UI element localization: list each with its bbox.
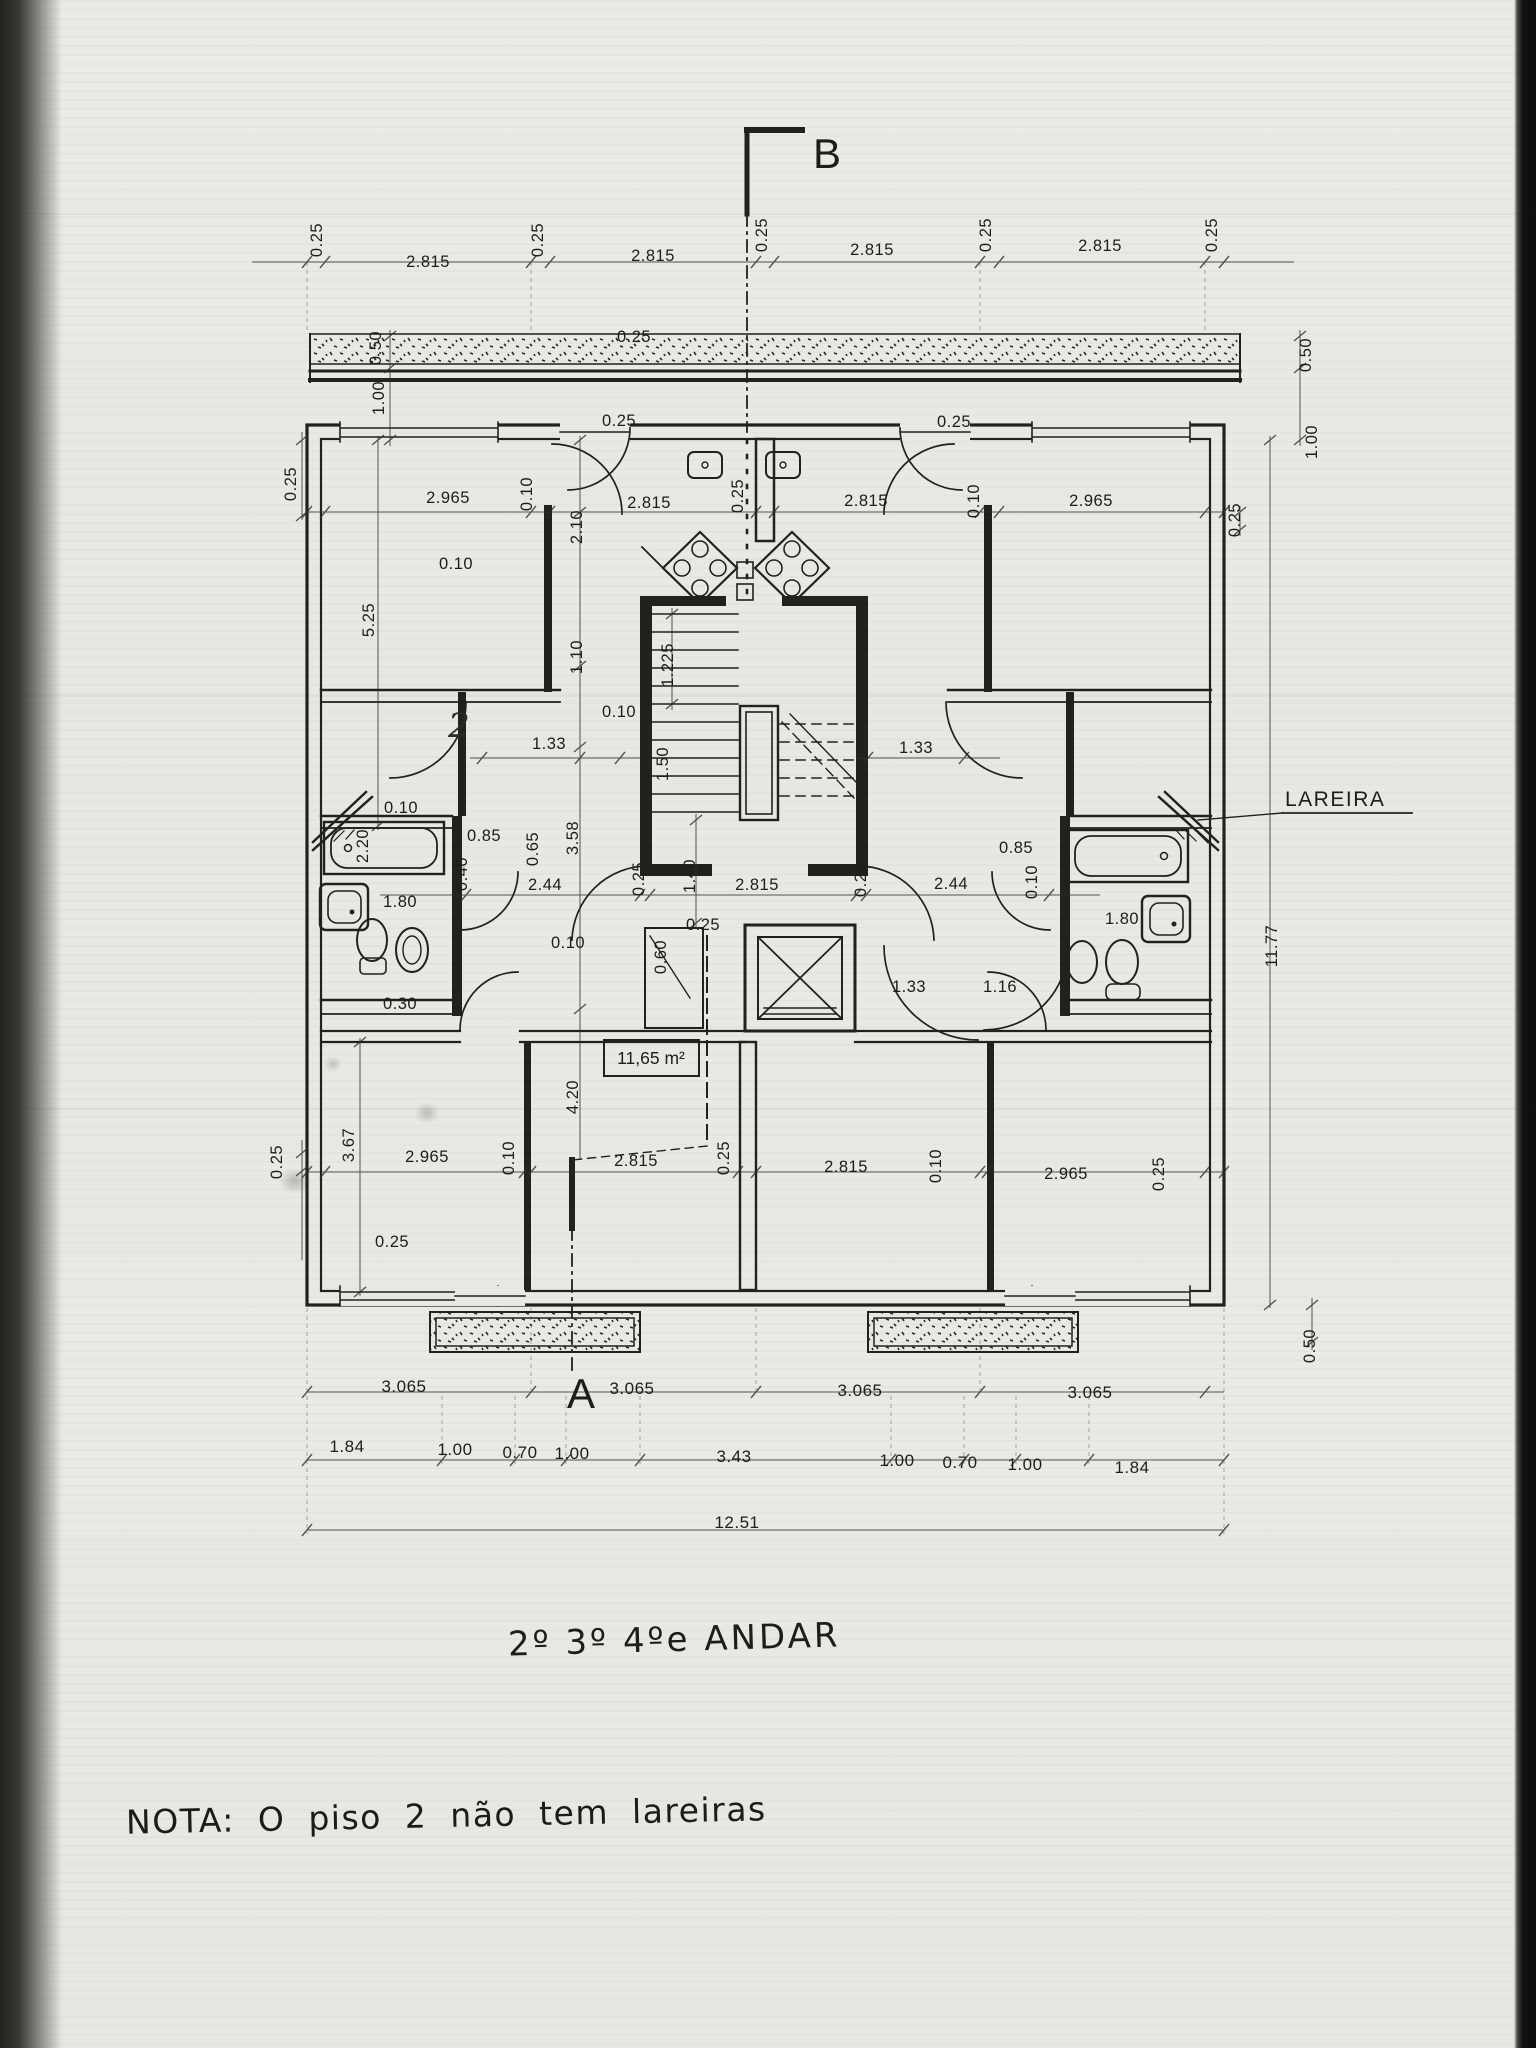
dimension-label: 2.815 <box>824 1158 868 1176</box>
dimension-label: 2.815 <box>850 241 894 259</box>
dimension-label: 3.065 <box>1067 1383 1112 1402</box>
dimension-label: 1.00 <box>879 1451 914 1470</box>
section-mark-a: A <box>567 1370 595 1417</box>
dimension-label: 0.25 <box>375 1233 409 1251</box>
dimension-label: 2.815 <box>627 494 671 512</box>
room-area-label: 11,65 m² <box>617 1048 685 1068</box>
dimension-label: 2.815 <box>735 876 779 894</box>
dimension-label: 0.10 <box>927 1149 945 1183</box>
dimension-label: 0.10 <box>518 477 536 511</box>
dimension-label: 1.225 <box>659 643 677 687</box>
dimension-label: 2.44 <box>528 876 562 894</box>
dimension-label: 3.58 <box>564 821 582 855</box>
dimension-label: 0.25 <box>753 218 771 252</box>
dimension-label: 0.25 <box>1150 1157 1168 1191</box>
dimension-label: 1.16 <box>983 978 1017 996</box>
door-arcs <box>390 428 1068 1040</box>
dimension-label: 0.25 <box>715 1141 733 1175</box>
dimension-label: 3.065 <box>381 1377 426 1396</box>
bidet-left <box>396 928 428 972</box>
dimension-label: 1.00 <box>370 381 388 415</box>
dimension-label: 0.10 <box>551 934 585 952</box>
dimension-label: 0.40 <box>453 857 471 891</box>
dimension-label: 0.10 <box>439 555 473 573</box>
dimension-label: 2.10 <box>568 510 586 544</box>
dimension-label: 1.80 <box>1105 910 1139 928</box>
dimension-label: 1.84 <box>1114 1458 1149 1477</box>
dimension-label: 0.50 <box>367 331 385 365</box>
dimension-label: 3.67 <box>340 1128 358 1162</box>
dimension-label: 0.10 <box>384 799 418 817</box>
elevator-shaft <box>745 925 855 1031</box>
dimension-label: 2.965 <box>426 489 470 507</box>
dimension-label: 0.50 <box>1301 1329 1319 1363</box>
dimension-label: 2.965 <box>1044 1165 1088 1183</box>
dimension-label: 0.25 <box>617 328 651 346</box>
dimension-label: 12.51 <box>714 1513 759 1532</box>
dimension-label: 2.965 <box>405 1148 449 1166</box>
dimension-label: 1.33 <box>899 739 933 757</box>
dimension-label: 0.25 <box>282 467 300 501</box>
dimension-label: 0.70 <box>942 1453 977 1472</box>
dimension-label: 1.84 <box>329 1437 364 1456</box>
kitchen-sink-left <box>688 452 722 478</box>
dimension-label: 0.25 <box>602 412 636 430</box>
dimension-label: 0.25 <box>729 479 747 513</box>
dimension-label: 5.25 <box>360 603 378 637</box>
dimension-label: 1.50 <box>654 747 672 781</box>
dimension-label: 1.33 <box>892 978 926 996</box>
dimension-label: 0.10 <box>602 703 636 721</box>
dimension-label: 0.10 <box>965 484 983 518</box>
dimension-label: 1.00 <box>554 1444 589 1463</box>
dimension-label: 0.85 <box>999 839 1033 857</box>
dimension-label: 0.25 <box>268 1145 286 1179</box>
bidet-right <box>1106 940 1138 984</box>
dimension-label: 11.77 <box>1263 925 1281 968</box>
kitchen-sink-right <box>766 452 800 478</box>
dimension-label: 4.20 <box>564 1080 582 1114</box>
dimension-label: 1.33 <box>532 735 566 753</box>
toilet-right <box>1067 941 1097 983</box>
dimension-label: 1.10 <box>568 640 586 674</box>
bathtub-right <box>1068 830 1188 882</box>
dimension-label: 0.25 <box>937 413 971 431</box>
dimension-label: 0.30 <box>383 995 417 1013</box>
dimension-label: 0.85 <box>467 827 501 845</box>
dimension-label: 2.815 <box>614 1152 658 1170</box>
toilet-left <box>357 919 387 961</box>
balcony-top <box>310 334 1240 382</box>
dimension-label: 0.25 <box>630 862 648 896</box>
fireplace-label: LAREIRA <box>1285 788 1385 811</box>
plan-linework <box>307 130 1412 1372</box>
elevator-x <box>758 937 842 1019</box>
dimension-label: 0.25 <box>686 916 720 934</box>
stair-treads-above <box>780 724 854 796</box>
dimension-label: 2.44 <box>934 875 968 893</box>
dimension-label: 0.10 <box>1023 865 1041 899</box>
dimension-label: 1.00 <box>437 1440 472 1459</box>
dimension-label: 0.25 <box>977 218 995 252</box>
dimension-label: 2.20 <box>354 829 372 863</box>
bathroom-walls <box>321 816 1211 1016</box>
dimension-label: 2.815 <box>631 247 675 265</box>
balcony-bottom-left <box>430 1312 640 1352</box>
scanned-page: 0.252.8150.252.8150.252.8150.252.8150.25… <box>0 0 1536 2048</box>
dimension-label: 1.80 <box>383 893 417 911</box>
handwritten-mark: 2 <box>447 706 470 746</box>
dimension-label: 0.70 <box>502 1443 537 1462</box>
dimension-label: 0.50 <box>1297 338 1315 372</box>
dimension-label: 0.60 <box>652 940 670 974</box>
floor-plan-drawing: 0.252.8150.252.8150.252.8150.252.8150.25… <box>0 0 1536 2048</box>
dimension-label: 2.965 <box>1069 492 1113 510</box>
dimension-label: 0.25 <box>852 863 870 897</box>
dimension-label: 0.25 <box>1203 218 1221 252</box>
dimension-label: 1.00 <box>1303 425 1321 459</box>
dimension-label: 0.65 <box>524 832 542 866</box>
dimension-label: 2.815 <box>406 253 450 271</box>
dimension-label: 2.815 <box>1078 237 1122 255</box>
dimension-label: 0.25 <box>529 223 547 257</box>
kitchen-fixtures <box>642 452 829 604</box>
dimension-label: 1.00 <box>1007 1455 1042 1474</box>
bathtub-left <box>324 822 444 874</box>
dimension-label: 3.065 <box>837 1381 882 1400</box>
dimension-label: 2.815 <box>844 492 888 510</box>
dimension-label: 3.43 <box>716 1447 751 1466</box>
dimension-label: 0.25 <box>308 223 326 257</box>
dimension-label: 1.40 <box>681 859 699 893</box>
dimension-label: 0.10 <box>500 1141 518 1175</box>
dimension-label: 3.065 <box>609 1379 654 1398</box>
section-mark-b: B <box>813 130 841 177</box>
stair-core <box>640 596 868 876</box>
balcony-bottom-right <box>868 1312 1078 1352</box>
dimension-label: 0.25 <box>1226 503 1244 537</box>
